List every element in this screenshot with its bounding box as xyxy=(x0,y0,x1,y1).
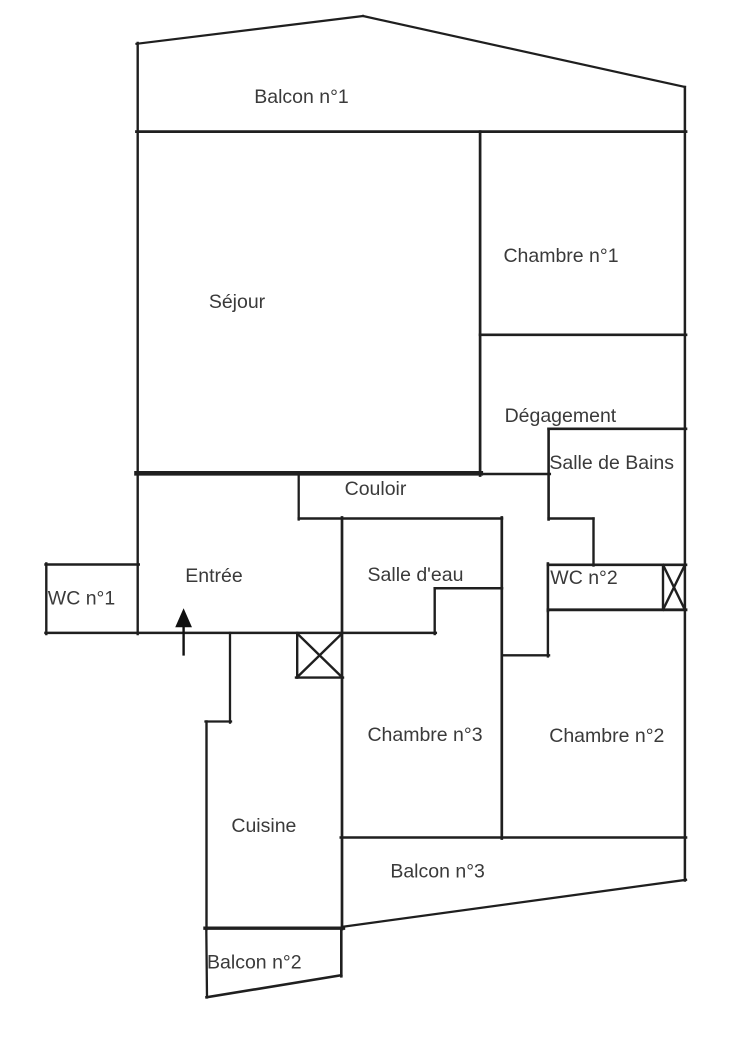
svg-text:Balcon n°1: Balcon n°1 xyxy=(254,86,349,108)
svg-text:Chambre n°3: Chambre n°3 xyxy=(367,724,482,746)
svg-text:Entrée: Entrée xyxy=(185,565,242,587)
svg-text:Chambre n°2: Chambre n°2 xyxy=(549,725,664,747)
svg-text:Dégagement: Dégagement xyxy=(505,405,617,427)
svg-text:Chambre n°1: Chambre n°1 xyxy=(503,245,618,267)
svg-text:Salle de Bains: Salle de Bains xyxy=(549,452,674,474)
svg-text:Séjour: Séjour xyxy=(209,291,266,313)
svg-text:Balcon n°3: Balcon n°3 xyxy=(390,861,485,883)
svg-text:Balcon n°2: Balcon n°2 xyxy=(207,952,302,974)
svg-text:WC n°2: WC n°2 xyxy=(550,567,617,589)
svg-text:Cuisine: Cuisine xyxy=(231,815,296,837)
svg-text:Salle d'eau: Salle d'eau xyxy=(368,564,464,586)
svg-text:WC n°1: WC n°1 xyxy=(48,588,115,610)
svg-text:Couloir: Couloir xyxy=(345,478,407,500)
